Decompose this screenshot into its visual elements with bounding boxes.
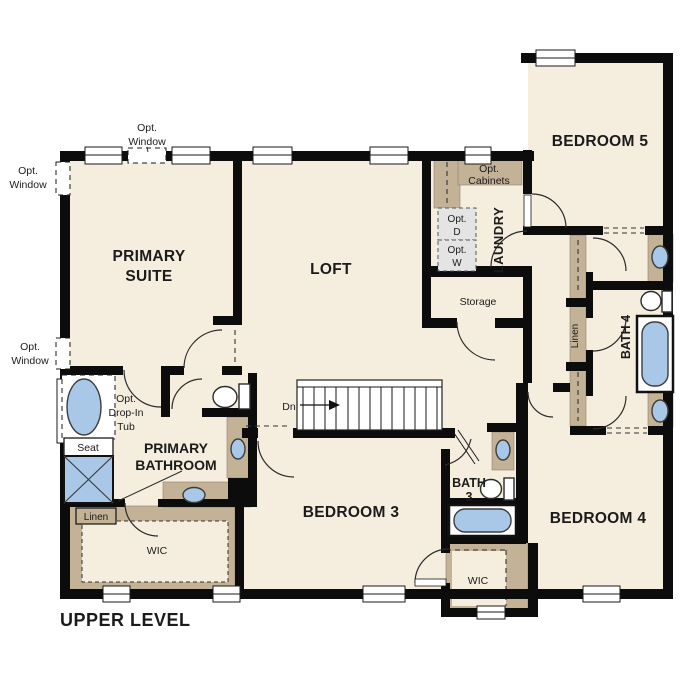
- opt-window-symbol: [56, 338, 70, 369]
- stairs: [297, 380, 442, 430]
- linen-hall-label: Linen: [570, 324, 581, 348]
- bath3-label: BATH: [452, 476, 486, 490]
- svg-text:Window: Window: [128, 136, 166, 148]
- opt-window-label-left-upper: Opt. Window: [9, 165, 47, 191]
- wic-primary-label: WIC: [147, 545, 168, 557]
- window: [583, 586, 620, 602]
- svg-text:Opt.: Opt.: [116, 393, 136, 405]
- window: [103, 586, 130, 602]
- window: [465, 147, 491, 164]
- svg-text:Cabinets: Cabinets: [468, 175, 509, 187]
- opt-window-label-top: Opt. Window: [128, 122, 166, 152]
- opt-window-symbol: [56, 162, 70, 195]
- bedroom5-label: BEDROOM 5: [552, 133, 649, 150]
- sink: [183, 488, 205, 503]
- linen-primary-label: Linen: [84, 512, 108, 523]
- window: [370, 147, 408, 164]
- window: [477, 606, 505, 619]
- svg-text:Opt.: Opt.: [18, 165, 38, 177]
- primary-bathroom-label-2: BATHROOM: [135, 457, 216, 473]
- svg-text:Window: Window: [11, 355, 49, 367]
- svg-text:Opt.: Opt.: [137, 122, 157, 134]
- opt-window-label-left-lower: Opt. Window: [11, 341, 49, 367]
- svg-text:Tub: Tub: [117, 421, 135, 433]
- bedroom5-door-panel: [524, 195, 531, 227]
- bathtub-primary: [67, 379, 101, 435]
- svg-text:Opt.: Opt.: [448, 214, 467, 225]
- page-title: UPPER LEVEL: [60, 610, 191, 630]
- sink: [652, 400, 668, 422]
- window: [536, 50, 575, 66]
- sink: [496, 440, 510, 460]
- sink: [652, 246, 668, 268]
- stairs-dn-label: Dn: [282, 401, 296, 413]
- window: [213, 586, 240, 602]
- svg-text:W: W: [452, 258, 462, 269]
- bedroom3-label: BEDROOM 3: [303, 504, 400, 521]
- window: [253, 147, 292, 164]
- svg-text:Opt.: Opt.: [20, 341, 40, 353]
- bedroom4-label: BEDROOM 4: [550, 510, 647, 527]
- toilet-bath4: [641, 291, 672, 312]
- window: [172, 147, 210, 164]
- laundry-label: LAUNDRY: [491, 207, 506, 274]
- svg-text:Drop-In: Drop-In: [108, 407, 143, 419]
- svg-text:Window: Window: [9, 179, 47, 191]
- loft-label: LOFT: [310, 261, 352, 278]
- sink: [231, 439, 245, 459]
- floor-plan-page: PRIMARY SUITE LOFT BEDROOM 5 BEDROOM 3 B…: [0, 0, 687, 687]
- svg-text:Opt.: Opt.: [479, 163, 499, 175]
- svg-text:Opt.: Opt.: [448, 245, 467, 256]
- bathtub-bath3: [449, 505, 516, 536]
- primary-suite-label: PRIMARY: [112, 248, 185, 265]
- bath4-label: BATH 4: [619, 315, 633, 359]
- window: [363, 586, 405, 602]
- bath3-label-2: 3: [466, 490, 473, 504]
- floor-plan: PRIMARY SUITE LOFT BEDROOM 5 BEDROOM 3 B…: [0, 0, 687, 687]
- window: [85, 147, 122, 164]
- svg-text:D: D: [453, 227, 460, 238]
- bathtub-bath4: [637, 316, 673, 392]
- seat-label: Seat: [77, 442, 99, 454]
- wic-secondary-label: WIC: [468, 575, 489, 587]
- wic-secondary-door-panel: [415, 579, 446, 586]
- toilet-primary: [213, 384, 250, 409]
- opt-window-symbol: [128, 148, 166, 163]
- shower: [64, 456, 113, 503]
- primary-bathroom-label: PRIMARY: [144, 440, 209, 456]
- primary-suite-label-2: SUITE: [125, 268, 172, 285]
- storage-label: Storage: [460, 296, 497, 308]
